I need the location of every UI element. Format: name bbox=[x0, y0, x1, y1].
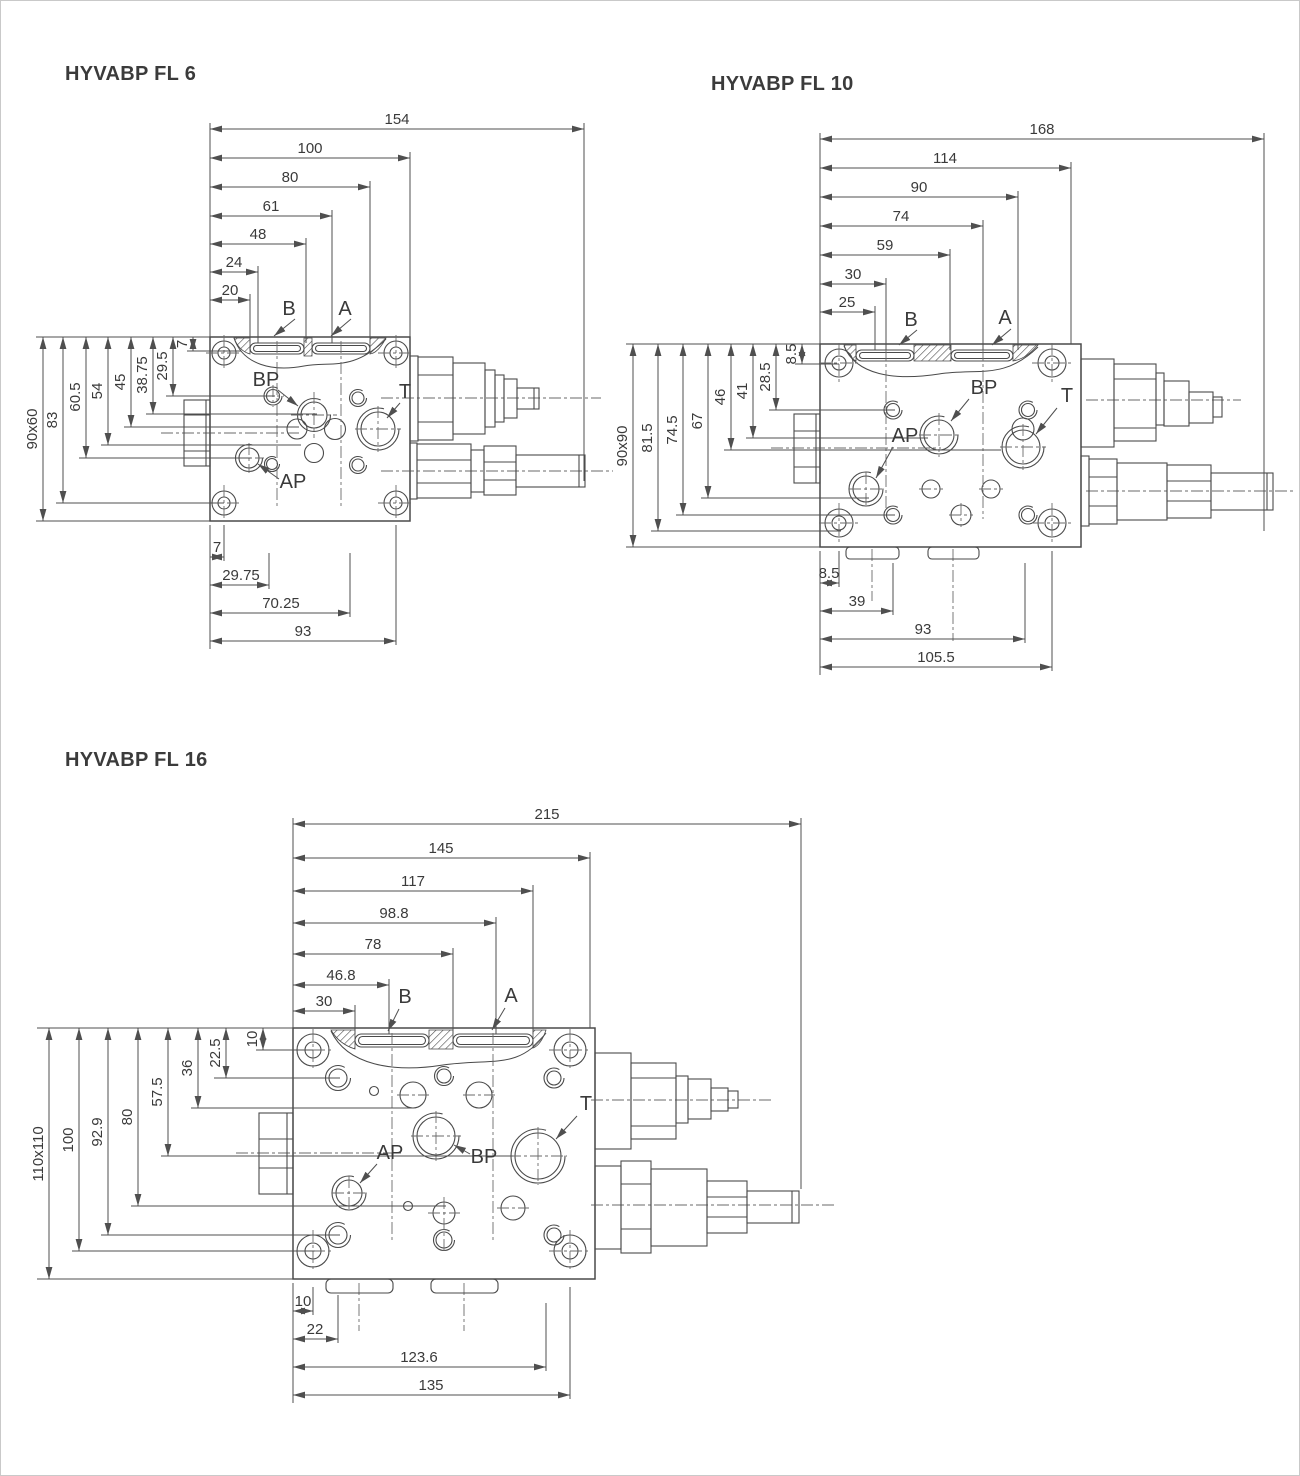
fl16-dim-46-8: 46.8 bbox=[326, 967, 355, 984]
fl16-dims-bottom: 10 22 123.6 135 bbox=[293, 1283, 570, 1403]
fl16-hex-plug bbox=[259, 1113, 293, 1194]
fl10-valve-cartridge-top bbox=[1081, 359, 1222, 447]
fl10-label-ap: AP bbox=[892, 425, 919, 447]
fl16-dim-117: 117 bbox=[401, 873, 425, 890]
fl16-dim-30: 30 bbox=[316, 993, 333, 1010]
diagram-fl16: 215 145 117 98.8 78 46.8 30 110x110 100 … bbox=[30, 806, 836, 1403]
fl16-bottom-bosses bbox=[326, 1279, 498, 1293]
fl10-bottom-bosses bbox=[846, 547, 979, 559]
fl10-dim-8-5-bottom: 8.5 bbox=[819, 565, 840, 582]
fl16-dim-215: 215 bbox=[534, 806, 559, 823]
fl6-label-ap: AP bbox=[280, 471, 307, 493]
fl10-dim-90: 90 bbox=[911, 179, 928, 196]
fl6-dim-38-75: 38.75 bbox=[134, 356, 151, 394]
fl6-dim-24: 24 bbox=[226, 254, 243, 271]
fl6-dim-83: 83 bbox=[44, 412, 61, 429]
fl10-label-t: T bbox=[1061, 385, 1073, 407]
fl6-dim-54: 54 bbox=[89, 383, 106, 400]
diagram-fl6: 154 100 80 61 48 24 20 90x60 83 60.5 54 … bbox=[24, 111, 613, 649]
fl16-dim-flange: 110x110 bbox=[30, 1126, 47, 1181]
fl6-dims-top: 154 100 80 61 48 24 20 bbox=[210, 111, 584, 481]
fl10-dim-81-5: 81.5 bbox=[639, 423, 656, 452]
fl6-label-t: T bbox=[399, 381, 411, 403]
fl16-dim-135: 135 bbox=[418, 1377, 443, 1394]
fl10-dims-left: 90x90 81.5 74.5 67 46 41 28.5 8.5 bbox=[614, 344, 1001, 547]
fl6-dim-20: 20 bbox=[222, 282, 239, 299]
fl6-dim-93: 93 bbox=[295, 623, 312, 640]
fl10-dim-105-5: 105.5 bbox=[917, 649, 955, 666]
fl10-kidney-a bbox=[951, 350, 1013, 361]
fl10-hex-plug bbox=[794, 414, 820, 483]
fl6-axis-lines bbox=[161, 341, 613, 506]
fl16-label-a: A bbox=[504, 985, 518, 1007]
fl6-dim-61: 61 bbox=[263, 198, 280, 215]
fl6-centermarks bbox=[206, 335, 414, 521]
fl6-kidney-section bbox=[234, 338, 386, 368]
fl10-dims-top: 168 114 90 74 59 30 25 bbox=[820, 121, 1264, 531]
fl6-dim-154: 154 bbox=[384, 111, 409, 128]
fl6-dim-7-top: 7 bbox=[174, 340, 191, 348]
fl10-dim-74-5: 74.5 bbox=[664, 415, 681, 444]
fl10-block-outline bbox=[820, 344, 1081, 547]
fl10-dim-25: 25 bbox=[839, 294, 856, 311]
fl6-bolt-holes bbox=[212, 341, 408, 515]
fl16-label-bp: BP bbox=[471, 1146, 498, 1168]
fl10-kidney-section bbox=[844, 345, 1038, 377]
fl16-dim-98-8: 98.8 bbox=[379, 905, 408, 922]
fl10-dim-30: 30 bbox=[845, 266, 862, 283]
fl10-dim-28-5: 28.5 bbox=[757, 362, 774, 391]
fl16-dim-145: 145 bbox=[428, 840, 453, 857]
fl16-dim-22: 22 bbox=[307, 1321, 324, 1338]
fl16-dim-80: 80 bbox=[119, 1109, 136, 1126]
page-frame: HYVABP FL 6 HYVABP FL 10 HYVABP FL 16 bbox=[0, 0, 1300, 1476]
fl10-dim-59: 59 bbox=[877, 237, 894, 254]
fl6-label-bp: BP bbox=[253, 369, 280, 391]
diagram-fl10: 168 114 90 74 59 30 25 90x90 81.5 74.5 6… bbox=[614, 121, 1293, 675]
fl10-dim-flange: 90x90 bbox=[614, 426, 631, 467]
fl6-dims-bottom: 7 29.75 70.25 93 bbox=[210, 525, 396, 649]
fl10-dim-8-5-top: 8.5 bbox=[783, 344, 800, 365]
fl16-dim-36: 36 bbox=[179, 1060, 196, 1077]
fl16-valve-cartridge-top bbox=[595, 1053, 738, 1149]
fl10-dim-168: 168 bbox=[1029, 121, 1054, 138]
fl6-dim-29-75: 29.75 bbox=[222, 567, 260, 584]
fl16-dim-57-5: 57.5 bbox=[149, 1077, 166, 1106]
drawing-canvas: 154 100 80 61 48 24 20 90x60 83 60.5 54 … bbox=[1, 1, 1300, 1476]
fl6-dim-45: 45 bbox=[112, 374, 129, 391]
fl10-dim-74: 74 bbox=[893, 208, 910, 225]
fl16-dim-10-bottom: 10 bbox=[295, 1293, 312, 1310]
fl16-valve-cartridge-bottom bbox=[595, 1161, 799, 1253]
fl16-body bbox=[236, 1028, 836, 1331]
fl6-dim-80: 80 bbox=[282, 169, 299, 186]
fl6-dim-7-bottom: 7 bbox=[213, 539, 221, 556]
fl10-kidney-b bbox=[856, 350, 914, 361]
fl6-dim-70-25: 70.25 bbox=[262, 595, 300, 612]
fl6-dim-flange: 90x60 bbox=[24, 409, 41, 450]
fl6-label-a: A bbox=[338, 298, 352, 320]
fl10-dim-93: 93 bbox=[915, 621, 932, 638]
fl16-label-t: T bbox=[580, 1093, 592, 1115]
fl16-dim-10-top: 10 bbox=[244, 1031, 261, 1048]
fl6-dim-29-5: 29.5 bbox=[154, 351, 171, 380]
fl6-dim-100: 100 bbox=[297, 140, 322, 157]
fl6-dim-60-5: 60.5 bbox=[67, 382, 84, 411]
fl16-dims-top: 215 145 117 98.8 78 46.8 30 bbox=[293, 806, 801, 1189]
fl16-dim-78: 78 bbox=[365, 936, 382, 953]
fl10-ports bbox=[849, 401, 1044, 525]
fl10-dim-46: 46 bbox=[712, 389, 729, 406]
fl16-dim-92-9: 92.9 bbox=[89, 1117, 106, 1146]
fl16-kidney-section bbox=[331, 1030, 546, 1068]
fl10-dim-67: 67 bbox=[689, 413, 706, 430]
fl6-valve-cartridge-top bbox=[410, 356, 539, 441]
fl10-dim-114: 114 bbox=[933, 150, 957, 167]
fl16-ports bbox=[326, 1066, 566, 1251]
fl6-label-b: B bbox=[282, 298, 295, 320]
fl16-dim-100: 100 bbox=[60, 1127, 77, 1152]
fl16-dim-22-5: 22.5 bbox=[207, 1038, 224, 1067]
fl16-label-ap: AP bbox=[377, 1142, 404, 1164]
fl10-dim-41: 41 bbox=[734, 383, 751, 400]
fl6-dim-48: 48 bbox=[250, 226, 267, 243]
fl10-dims-bottom: 8.5 39 93 105.5 bbox=[819, 551, 1052, 675]
fl16-label-b: B bbox=[398, 986, 411, 1008]
fl6-body bbox=[161, 335, 613, 521]
fl10-dim-39: 39 bbox=[849, 593, 866, 610]
fl10-label-b: B bbox=[904, 309, 917, 331]
fl10-label-a: A bbox=[998, 307, 1012, 329]
fl6-dims-left: 90x60 83 60.5 54 45 38.75 29.5 7 bbox=[24, 337, 317, 521]
fl6-ports bbox=[236, 387, 400, 474]
fl10-label-bp: BP bbox=[971, 377, 998, 399]
fl16-dim-123-6: 123.6 bbox=[400, 1349, 438, 1366]
